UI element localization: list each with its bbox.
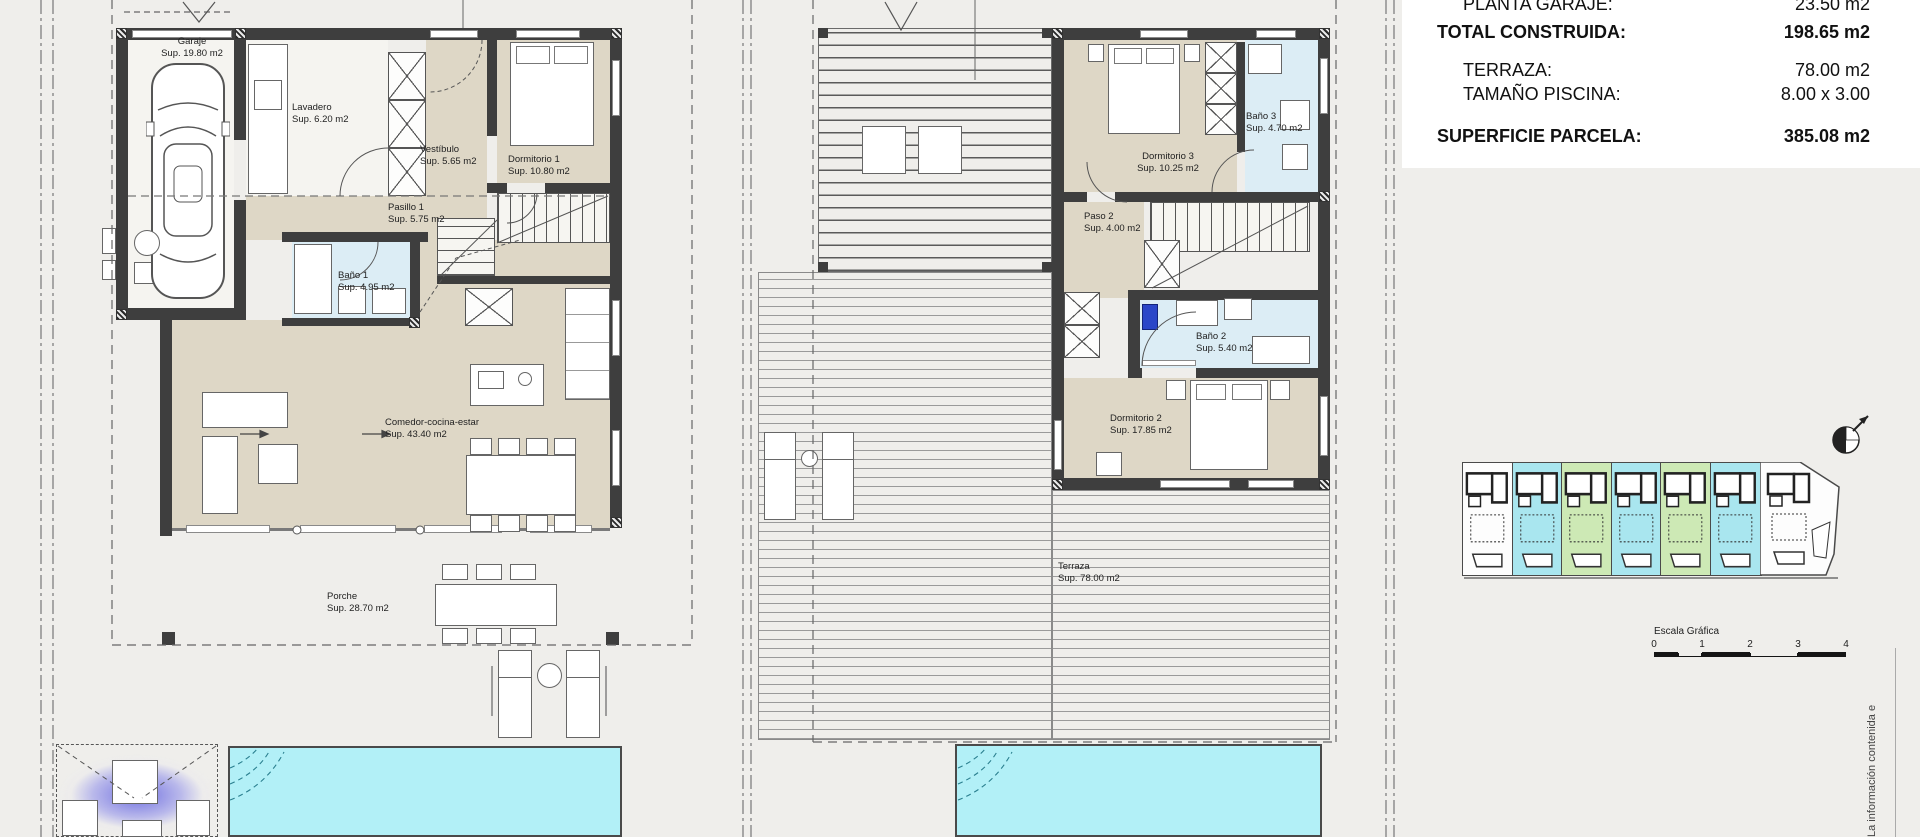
stairs bbox=[497, 193, 610, 243]
wall bbox=[116, 28, 128, 320]
summary-row-superficie-parcela: SUPERFICIE PARCELA: 385.08 m2 bbox=[1437, 126, 1870, 148]
site-unit bbox=[1513, 463, 1563, 575]
window bbox=[1140, 30, 1188, 38]
wall bbox=[1128, 290, 1140, 378]
wall bbox=[1064, 192, 1087, 202]
site-unit-plan bbox=[1562, 463, 1611, 575]
shower bbox=[294, 244, 332, 314]
wall-anchor bbox=[235, 28, 246, 39]
site-unit-plan bbox=[1661, 463, 1710, 575]
room-vestibulo bbox=[426, 40, 487, 196]
sink bbox=[1176, 300, 1218, 326]
wall bbox=[487, 183, 507, 193]
window bbox=[612, 430, 620, 486]
toilet bbox=[1282, 144, 1308, 170]
stairs bbox=[437, 218, 495, 276]
closet-icon bbox=[388, 52, 426, 100]
understairs-storage bbox=[465, 288, 513, 326]
closet-icon bbox=[1205, 104, 1237, 135]
scale-tick: 3 bbox=[1792, 639, 1804, 650]
wall bbox=[437, 276, 610, 284]
wall-anchor bbox=[1052, 28, 1063, 39]
window bbox=[1256, 30, 1296, 38]
chair bbox=[476, 628, 502, 644]
room-label-lavadero: LavaderoSup. 6.20 m2 bbox=[292, 102, 362, 125]
scale-segment bbox=[1702, 652, 1750, 657]
room-label-terraza: TerrazaSup. 78.00 m2 bbox=[1058, 561, 1128, 584]
meter-box bbox=[102, 260, 116, 280]
porch-column bbox=[162, 632, 175, 645]
wall bbox=[1115, 192, 1318, 202]
nightstand bbox=[1270, 380, 1290, 400]
pergola-post bbox=[818, 262, 828, 272]
scale-tick: 4 bbox=[1840, 639, 1852, 650]
wall-anchor bbox=[1319, 28, 1330, 39]
window bbox=[1320, 396, 1328, 456]
scale-segment bbox=[1798, 652, 1846, 657]
pillow bbox=[554, 46, 588, 64]
site-unit bbox=[1562, 463, 1612, 575]
summary-row-planta-garaje: PLANTA GARAJE: 23.50 m2 bbox=[1437, 0, 1870, 16]
bench bbox=[1096, 452, 1122, 476]
chair bbox=[442, 628, 468, 644]
chair bbox=[470, 438, 492, 455]
hob bbox=[478, 371, 504, 389]
pergola-post bbox=[1042, 28, 1052, 38]
room-label-bano-2: Baño 2Sup. 5.40 m2 bbox=[1196, 331, 1266, 354]
washer-icon bbox=[134, 230, 160, 256]
chair bbox=[498, 438, 520, 455]
wall-anchor bbox=[1319, 479, 1330, 490]
washer-icon bbox=[1142, 304, 1158, 330]
closet-icon bbox=[1205, 73, 1237, 104]
closet-icon bbox=[1205, 42, 1237, 73]
pillow bbox=[1114, 48, 1142, 64]
site-unit-plan bbox=[1711, 463, 1760, 575]
kitchen-sink bbox=[518, 372, 532, 386]
pergola-post bbox=[818, 28, 828, 38]
skylight bbox=[862, 126, 906, 174]
skylight bbox=[918, 126, 962, 174]
side-table bbox=[801, 450, 818, 467]
wall bbox=[545, 183, 622, 193]
room-label-vestibulo: VestíbuloSup. 5.65 m2 bbox=[420, 144, 492, 167]
wall bbox=[487, 40, 497, 136]
outdoor-chair bbox=[176, 800, 210, 836]
nightstand bbox=[1088, 44, 1104, 62]
terrace-deck bbox=[1052, 490, 1330, 740]
sofa bbox=[202, 392, 288, 428]
closet-icon bbox=[1064, 325, 1100, 358]
wall-anchor bbox=[611, 517, 622, 528]
room-label-dormitorio-2: Dormitorio 2Sup. 17.85 m2 bbox=[1110, 413, 1200, 436]
outdoor-table bbox=[435, 584, 557, 626]
entry-mark-icon bbox=[885, 2, 917, 30]
car-icon bbox=[146, 58, 230, 304]
site-unit bbox=[1612, 463, 1662, 575]
room-label-paso-2: Paso 2Sup. 4.00 m2 bbox=[1084, 211, 1144, 234]
laundry-counter bbox=[248, 44, 288, 194]
wall-anchor bbox=[116, 309, 127, 320]
sun-lounger bbox=[498, 650, 532, 738]
chair bbox=[498, 515, 520, 532]
coffee-table bbox=[258, 444, 298, 484]
porch-column bbox=[606, 632, 619, 645]
sun-lounger bbox=[822, 432, 854, 520]
wall-anchor bbox=[611, 28, 622, 39]
wall bbox=[410, 232, 420, 326]
scale-segment bbox=[1678, 653, 1702, 657]
pillow bbox=[1146, 48, 1174, 64]
window bbox=[1248, 480, 1294, 488]
outdoor-table bbox=[112, 760, 158, 804]
window bbox=[1054, 420, 1062, 470]
pillow bbox=[1232, 384, 1262, 400]
site-unit bbox=[1661, 463, 1711, 575]
divider bbox=[1895, 648, 1896, 837]
swimming-pool bbox=[228, 746, 622, 837]
closet-icon bbox=[1064, 292, 1100, 325]
door-leaf bbox=[1142, 360, 1196, 366]
outdoor-chair bbox=[62, 800, 98, 836]
wall bbox=[1128, 368, 1142, 378]
room-label-dormitorio-3: Dormitorio 3Sup. 10.25 m2 bbox=[1118, 151, 1218, 174]
summary-row-total-construida: TOTAL CONSTRUIDA: 198.65 m2 bbox=[1437, 22, 1870, 44]
disclaimer-text: La información contenida e bbox=[1866, 578, 1886, 837]
chair bbox=[554, 515, 576, 532]
scale-tick: 0 bbox=[1648, 639, 1660, 650]
floorplan-drawing: GarajeSup. 19.80 m2 LavaderoSup. 6.20 m2… bbox=[0, 0, 1920, 837]
nightstand bbox=[1184, 44, 1200, 62]
chair bbox=[510, 628, 536, 644]
north-arrow-icon bbox=[1833, 416, 1868, 453]
chair bbox=[554, 438, 576, 455]
entrance-door bbox=[430, 30, 478, 38]
entry-mark-icon bbox=[183, 2, 215, 22]
window bbox=[516, 30, 580, 38]
wall-anchor bbox=[409, 317, 420, 328]
chair bbox=[510, 564, 536, 580]
room-label-bano-3: Baño 3Sup. 4.70 m2 bbox=[1246, 111, 1316, 134]
wall-anchor bbox=[1052, 479, 1063, 490]
room-label-garaje: GarajeSup. 19.80 m2 bbox=[152, 36, 232, 59]
room-label-comedor: Comedor-cocina-estarSup. 43.40 m2 bbox=[385, 417, 505, 440]
meter-box bbox=[102, 228, 116, 254]
wall bbox=[160, 320, 172, 536]
site-unit-plan bbox=[1513, 463, 1562, 575]
window bbox=[612, 60, 620, 116]
side-table bbox=[537, 663, 562, 688]
chair bbox=[442, 564, 468, 580]
sliding-window bbox=[186, 525, 270, 533]
nightstand bbox=[1166, 380, 1186, 400]
scale-tick: 2 bbox=[1744, 639, 1756, 650]
wall bbox=[1237, 42, 1245, 152]
scale-bar-title: Escala Gráfica bbox=[1654, 626, 1850, 637]
summary-row-tamano-piscina: TAMAÑO PISCINA: 8.00 x 3.00 bbox=[1437, 84, 1870, 106]
site-unit bbox=[1711, 463, 1761, 575]
scale-segment bbox=[1654, 652, 1678, 657]
site-unit bbox=[1463, 463, 1513, 575]
site-unit-plan bbox=[1612, 463, 1661, 575]
chair bbox=[470, 515, 492, 532]
sofa bbox=[202, 436, 238, 514]
wall bbox=[282, 232, 428, 242]
wall-anchor bbox=[1319, 191, 1330, 202]
outdoor-chair bbox=[122, 820, 162, 837]
dining-table bbox=[466, 455, 576, 515]
scale-tick: 1 bbox=[1696, 639, 1708, 650]
window bbox=[1320, 58, 1328, 114]
pillow bbox=[1196, 384, 1226, 400]
chair bbox=[476, 564, 502, 580]
wall-anchor bbox=[116, 28, 127, 39]
chair bbox=[526, 438, 548, 455]
scale-bar: Escala Gráfica 0 1 2 3 4 bbox=[1654, 626, 1850, 637]
site-unit-end bbox=[1760, 462, 1840, 576]
sliding-window bbox=[300, 525, 396, 533]
window bbox=[1160, 480, 1230, 488]
laundry-sink bbox=[254, 80, 282, 110]
closet-icon bbox=[1144, 240, 1180, 288]
wall bbox=[234, 200, 246, 308]
sun-lounger bbox=[764, 432, 796, 520]
summary-row-terraza: TERRAZA: 78.00 m2 bbox=[1437, 60, 1870, 82]
terrace-deck bbox=[758, 272, 1052, 740]
window bbox=[612, 300, 620, 356]
room-label-pasillo-1: Pasillo 1Sup. 5.75 m2 bbox=[388, 202, 458, 225]
shower bbox=[1248, 44, 1282, 74]
swimming-pool bbox=[955, 744, 1322, 837]
wall bbox=[116, 308, 246, 320]
toilet bbox=[1224, 298, 1252, 320]
chair bbox=[526, 515, 548, 532]
pergola-post bbox=[1042, 262, 1052, 272]
sun-lounger bbox=[566, 650, 600, 738]
wall bbox=[234, 40, 246, 140]
wall bbox=[282, 318, 420, 326]
scale-segment bbox=[1750, 653, 1798, 657]
closet-icon bbox=[388, 100, 426, 148]
room-label-bano-1: Baño 1Sup. 4.95 m2 bbox=[338, 270, 402, 293]
wall bbox=[1196, 368, 1318, 378]
site-unit-plan bbox=[1463, 463, 1512, 575]
site-plan bbox=[1462, 462, 1762, 576]
room-label-dormitorio-1: Dormitorio 1Sup. 10.80 m2 bbox=[508, 154, 598, 177]
room-label-porche: PorcheSup. 28.70 m2 bbox=[327, 591, 397, 614]
pillow bbox=[516, 46, 550, 64]
kitchen-counter bbox=[565, 288, 610, 400]
